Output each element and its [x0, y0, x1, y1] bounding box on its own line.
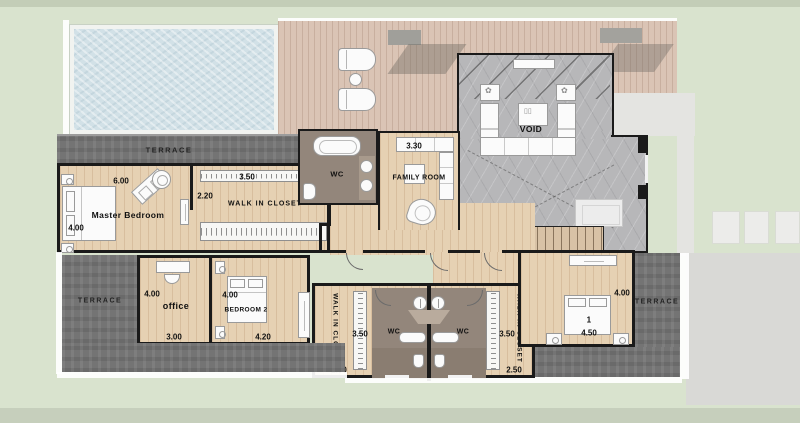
- nightstand-icon: [61, 174, 74, 185]
- master-name: Master Bedroom: [92, 210, 165, 220]
- stepping-paver: [744, 211, 769, 244]
- wall-segment: [638, 185, 648, 199]
- master-closet-dim-depth: 2.20: [197, 192, 213, 201]
- master-dim-width: 6.00: [113, 177, 129, 186]
- nightstand-icon: [61, 243, 74, 253]
- master-bedroom: 6.00 4.00 Master Bedroom 3.50 2.20 WALK …: [57, 163, 330, 253]
- stepping-paver: [775, 211, 800, 244]
- bed-icon: [227, 276, 267, 323]
- cabinet-below-icon: [575, 199, 623, 227]
- side-path: [612, 93, 695, 136]
- office-name: office: [163, 301, 189, 311]
- bedroom2-name: BEDROOM 2: [225, 307, 268, 314]
- sink-icon: [431, 296, 445, 310]
- terrace-top-label: TERRACE: [146, 146, 193, 155]
- pillow-icon: [66, 191, 75, 212]
- room-divider-wall: [209, 258, 212, 342]
- wc-b-label: WC: [457, 329, 469, 336]
- plant-table-icon: ✿: [556, 84, 576, 101]
- pillow-icon: [589, 298, 607, 307]
- sofa-top-icon: [396, 137, 454, 152]
- terrace-bottom-right: [535, 347, 680, 377]
- pillow-icon: [230, 279, 245, 288]
- terrace-left-label: TERRACE: [78, 298, 122, 305]
- terrace-bottom-left: [62, 343, 345, 372]
- console-shelf-icon: [513, 59, 555, 69]
- master-wc-label: WC: [330, 170, 343, 179]
- vanity-icon: [399, 332, 426, 343]
- toilet-icon: [434, 354, 445, 368]
- office-bedroom2-block: 4.00 office 3.00 4.00 BEDROOM 2 4.20: [137, 255, 310, 345]
- master-wc: WC: [298, 129, 378, 205]
- plant-table-icon: ✿: [480, 84, 500, 101]
- sun-lounger-line: [346, 50, 347, 69]
- lawn-bottom-band: [0, 408, 800, 423]
- toilet-icon: [413, 354, 424, 368]
- coffee-table-icon: ▯▯: [518, 103, 548, 126]
- closet-shelf: [486, 291, 500, 370]
- basin-icon: [152, 170, 171, 189]
- hall-wall: [363, 250, 425, 253]
- sun-lounger-icon: [338, 48, 376, 71]
- wardrobe-icon: [298, 292, 310, 338]
- bathtub-icon: [313, 136, 361, 156]
- planter-box: [388, 30, 421, 45]
- terrace-right-label: TERRACE: [635, 299, 679, 306]
- sink-icon: [413, 296, 427, 310]
- master-closet-name: WALK IN CLOSET: [228, 201, 302, 208]
- master-dim-height: 4.00: [68, 224, 84, 233]
- wall-pier-icon: [215, 261, 225, 274]
- wall-segment: [638, 137, 648, 153]
- void-label: VOID: [520, 124, 542, 134]
- hall-wall: [448, 250, 480, 253]
- closet-a-dim-height: 3.50: [352, 330, 368, 339]
- bedroom1-dim-height: 4.00: [614, 289, 630, 298]
- bedroom2-dim-height: 4.00: [222, 291, 238, 300]
- office-dim-width: 3.00: [166, 333, 182, 342]
- nightstand-icon: [613, 333, 629, 345]
- pillow-icon: [248, 279, 263, 288]
- driveway: [686, 253, 800, 405]
- roof-shadow: [600, 28, 642, 43]
- closet-b-dim-height: 3.50: [499, 330, 515, 339]
- window-segment: [645, 155, 648, 183]
- sun-lounger-line: [346, 90, 347, 109]
- closet-shelf: [200, 222, 327, 241]
- door-arc: [346, 253, 363, 270]
- desk-icon: [156, 261, 190, 273]
- lawn-top-band: [0, 0, 800, 7]
- sofa-bottom-icon: [480, 137, 576, 156]
- office-dim-height: 4.00: [144, 290, 160, 299]
- dresser-icon: [569, 255, 617, 266]
- vanity-icon: [432, 332, 459, 343]
- plot-edging: [57, 372, 347, 378]
- wc-a-label: WC: [388, 329, 400, 336]
- wall-pier-icon: [215, 326, 225, 339]
- floor-plan: TERRACE ✿ ✿ ▯▯ VOID 6.00 4.00 Master B: [0, 0, 800, 423]
- side-path-column: [677, 136, 694, 256]
- bedroom1-number: 1: [587, 316, 592, 325]
- pool-left-edging: [63, 20, 69, 134]
- terrace-top: TERRACE: [57, 134, 298, 163]
- terrace-left: TERRACE: [62, 255, 137, 343]
- family-name: FAMILY ROOM: [392, 175, 445, 182]
- bedroom1-dim-width: 4.50: [581, 329, 597, 338]
- plot-edging: [56, 252, 62, 374]
- sun-lounger-icon: [338, 88, 376, 111]
- wall-segment: [319, 223, 322, 252]
- closet-divider-wall: [190, 166, 193, 210]
- bedroom1: 4.00 BEDROOM 1 4.50: [518, 250, 635, 347]
- closet-wc-block: WALK IN CLOSET 3.50 2.50 WC WC 3.50 WALK…: [312, 283, 535, 378]
- toilet-icon: [303, 183, 316, 200]
- chair-icon: [164, 274, 180, 284]
- nightstand-icon: [546, 333, 562, 345]
- master-closet-dim-width: 3.50: [239, 173, 255, 182]
- plot-edging: [535, 377, 682, 383]
- pod-chair-icon: [405, 195, 440, 228]
- sink-icon: [360, 179, 373, 192]
- plot-edging: [680, 253, 689, 379]
- console-icon: [180, 199, 189, 225]
- pillow-icon: [568, 298, 586, 307]
- hall-wall: [330, 250, 346, 253]
- plot-edging: [345, 378, 535, 383]
- family-dim: 3.30: [406, 142, 422, 151]
- stepping-paver: [712, 211, 740, 244]
- swimming-pool: [70, 25, 278, 134]
- family-room: 3.30 FAMILY ROOM: [378, 131, 460, 230]
- closet-b-dim-width: 2.50: [506, 366, 522, 375]
- bedroom2-dim-width: 4.20: [255, 333, 271, 342]
- deck-side-table-icon: [349, 73, 362, 86]
- bed-icon: 1 4.50: [564, 295, 611, 335]
- sink-icon: [360, 160, 373, 173]
